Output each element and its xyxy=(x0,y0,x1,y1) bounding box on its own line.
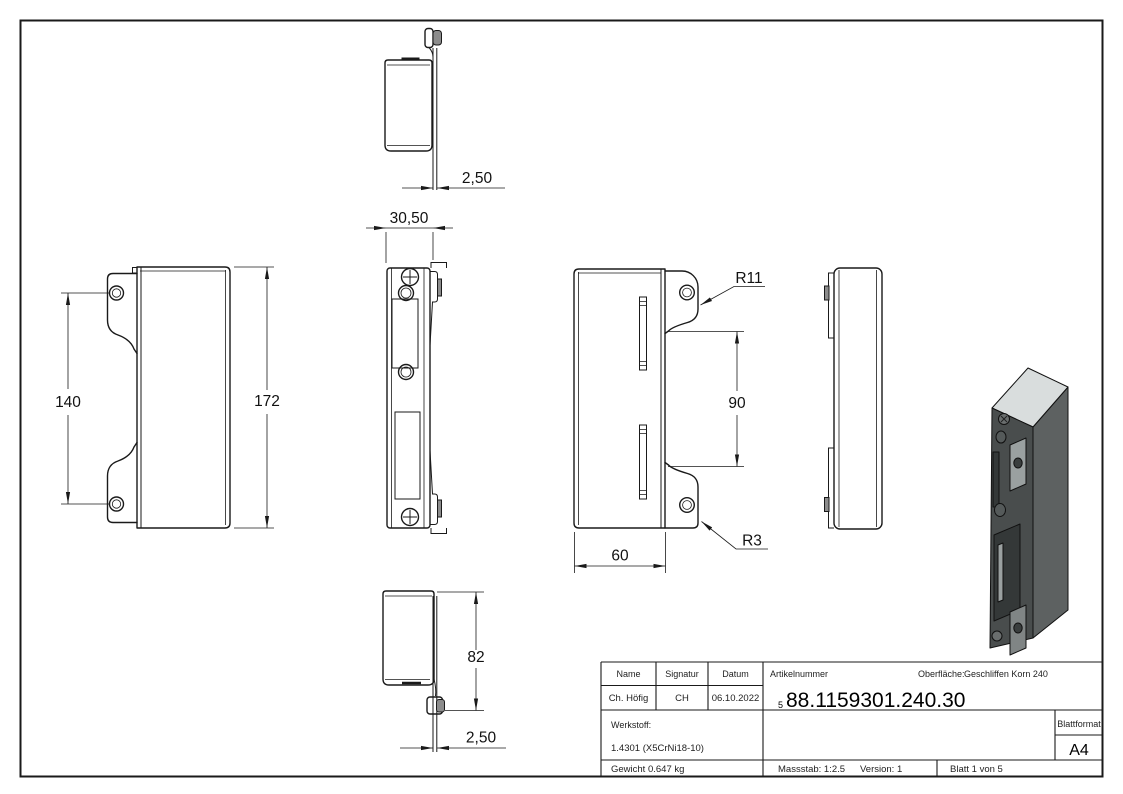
dim-tab-spacing: 90 xyxy=(668,332,746,467)
dim-total-height: 172 xyxy=(234,267,280,528)
mounting-tab-upper xyxy=(108,274,138,354)
blattformat-value: A4 xyxy=(1069,742,1089,759)
mounting-hole-upper xyxy=(110,286,124,300)
mounting-hole-lower xyxy=(110,497,124,511)
latch-tab-lower xyxy=(430,451,438,525)
drawing-frame xyxy=(21,21,1103,777)
latch-bump xyxy=(438,500,442,517)
dim-label-hole-spacing: 140 xyxy=(55,394,81,411)
dim-depth: 82 xyxy=(437,592,485,711)
profile-view xyxy=(387,263,447,534)
latch-bump xyxy=(438,279,442,296)
dim-side-width: 30,50 xyxy=(366,210,453,263)
hole-inner xyxy=(401,288,411,298)
oberflaeche-label: Oberfläche: xyxy=(918,669,965,679)
body-outline xyxy=(834,268,882,529)
iso-latch-hole xyxy=(1014,623,1022,633)
dim-label-total-height: 172 xyxy=(254,393,280,410)
massstab-value: Massstab: 1:2.5 xyxy=(778,764,845,775)
dim-tab-radius: R11 xyxy=(701,270,766,305)
latch-bump xyxy=(825,498,830,512)
slot-lower xyxy=(640,425,647,499)
artikelnummer-header: Artikelnummer xyxy=(770,669,828,679)
latch-bump xyxy=(825,286,830,300)
iso-latch-hole xyxy=(1014,458,1022,468)
front-view xyxy=(108,267,231,528)
dim-label-depth: 82 xyxy=(467,649,484,666)
body-outline xyxy=(387,268,430,528)
version-value: Version: 1 xyxy=(860,764,902,775)
mounting-hole-lower xyxy=(680,498,695,513)
datum-value: 06.10.2022 xyxy=(712,693,760,704)
oberflaeche-value: Geschliffen Korn 240 xyxy=(964,669,1048,679)
top-tab xyxy=(425,29,433,48)
latch-tab-upper xyxy=(430,272,438,346)
signatur-header: Signatur xyxy=(665,669,699,679)
gewicht-value: Gewicht 0.647 kg xyxy=(611,764,684,775)
leader-line xyxy=(701,287,766,306)
mounting-tab-upper xyxy=(665,271,698,334)
title-block-grid xyxy=(601,662,1103,777)
dim-label-body-width: 60 xyxy=(611,548,629,565)
slot-upper xyxy=(640,297,647,370)
top-tab-edge xyxy=(431,263,447,269)
slot-upper xyxy=(392,299,418,368)
body-outline xyxy=(385,60,432,151)
latch-bump xyxy=(437,700,445,713)
name-value: Ch. Höfig xyxy=(609,693,649,704)
body-outline xyxy=(137,267,230,528)
iso-screw-icon xyxy=(992,631,1002,641)
engineering-drawing-canvas: 2,50 140 172 xyxy=(0,0,1123,794)
mounting-hole-upper-inner xyxy=(112,289,120,297)
iso-hole xyxy=(995,504,1006,517)
dim-body-width: 60 xyxy=(575,532,666,573)
dim-label-top-flange: 2,50 xyxy=(462,170,493,187)
dim-top-flange: 2,50 xyxy=(402,170,505,188)
signatur-value: CH xyxy=(675,693,689,704)
mounting-hole-upper xyxy=(680,285,695,300)
artikelnummer-value: 88.1159301.240.30 xyxy=(786,689,965,712)
dim-label-bottom-flange: 2,50 xyxy=(466,730,497,747)
iso-side-face xyxy=(1033,387,1068,638)
drawing-sheet: 2,50 140 172 xyxy=(0,0,1123,794)
slot-ticks xyxy=(640,430,647,495)
dim-label-corner-radius: R3 xyxy=(742,533,762,550)
iso-cutout-edge xyxy=(998,543,1003,602)
latch-bump xyxy=(433,31,442,46)
mounting-hole-lower-inner xyxy=(112,500,120,508)
slot-ticks xyxy=(640,302,647,366)
mounting-tab-lower xyxy=(665,463,698,529)
dim-label-side-width: 30,50 xyxy=(390,210,429,227)
werkstoff-label: Werkstoff: xyxy=(611,720,651,730)
artikelnummer-prefix: 5 xyxy=(778,700,783,710)
tab-upper xyxy=(829,273,835,338)
tab-bend xyxy=(429,48,433,58)
slot-lower xyxy=(395,412,420,499)
screw-cross-icon xyxy=(403,270,417,284)
name-header: Name xyxy=(616,669,640,679)
title-block: Name Signatur Datum Ch. Höfig CH 06.10.2… xyxy=(601,662,1103,777)
mounting-hole-upper-inner xyxy=(683,288,692,297)
mounting-tab-lower xyxy=(108,443,138,523)
dim-label-tab-radius: R11 xyxy=(735,270,762,287)
dim-corner-radius: R3 xyxy=(702,522,769,550)
mounting-hole-lower-inner xyxy=(683,501,692,510)
blattformat-header: Blattformat xyxy=(1057,719,1101,729)
side-view-right xyxy=(825,268,883,529)
datum-header: Datum xyxy=(722,669,749,679)
tab-lower xyxy=(829,448,835,528)
bottom-view xyxy=(383,591,445,752)
iso-slot xyxy=(993,452,999,507)
top-view xyxy=(385,29,442,191)
bottom-tab-edge xyxy=(431,528,447,534)
dim-bottom-flange: 2,50 xyxy=(400,730,506,749)
iso-hole xyxy=(996,431,1006,443)
dim-label-tab-spacing: 90 xyxy=(728,395,746,412)
body-outline xyxy=(574,269,665,528)
back-view xyxy=(574,269,698,528)
flange-bend xyxy=(434,679,436,696)
werkstoff-value: 1.4301 (X5CrNi18-10) xyxy=(611,743,704,754)
iso-view xyxy=(990,368,1068,655)
blatt-value: Blatt 1 von 5 xyxy=(950,764,1003,775)
dim-hole-spacing: 140 xyxy=(55,293,109,504)
screw-cross-icon xyxy=(403,510,417,524)
body-outline xyxy=(383,591,434,685)
